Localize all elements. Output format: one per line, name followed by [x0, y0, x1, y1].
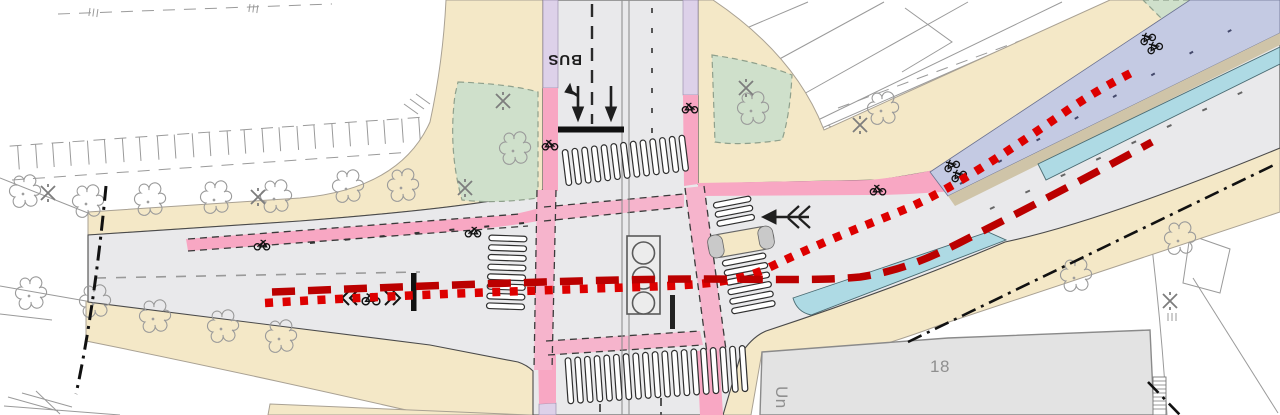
parking-strip-north-right — [683, 0, 698, 95]
bus-lane-label: BUS — [547, 51, 582, 68]
parcel-lines-bottom-right — [1150, 231, 1278, 415]
intersection-site-plan: 18 Un BUS — [0, 0, 1280, 415]
site-plan-canvas: 18 Un BUS — [0, 0, 1280, 415]
building-name-label: Un — [772, 386, 791, 409]
traffic-signal-symbol — [627, 236, 660, 314]
bike-lane-north-left — [543, 88, 558, 191]
stop-line-east — [670, 295, 675, 329]
building-stairs — [1153, 377, 1166, 415]
parking-strip-north-left — [543, 0, 558, 88]
survey-boundary-line — [58, 4, 332, 14]
parking-strip-south-left — [539, 403, 556, 415]
building-number-label: 18 — [930, 357, 950, 376]
parking-stalls — [10, 117, 429, 180]
stop-line-north — [558, 127, 624, 133]
